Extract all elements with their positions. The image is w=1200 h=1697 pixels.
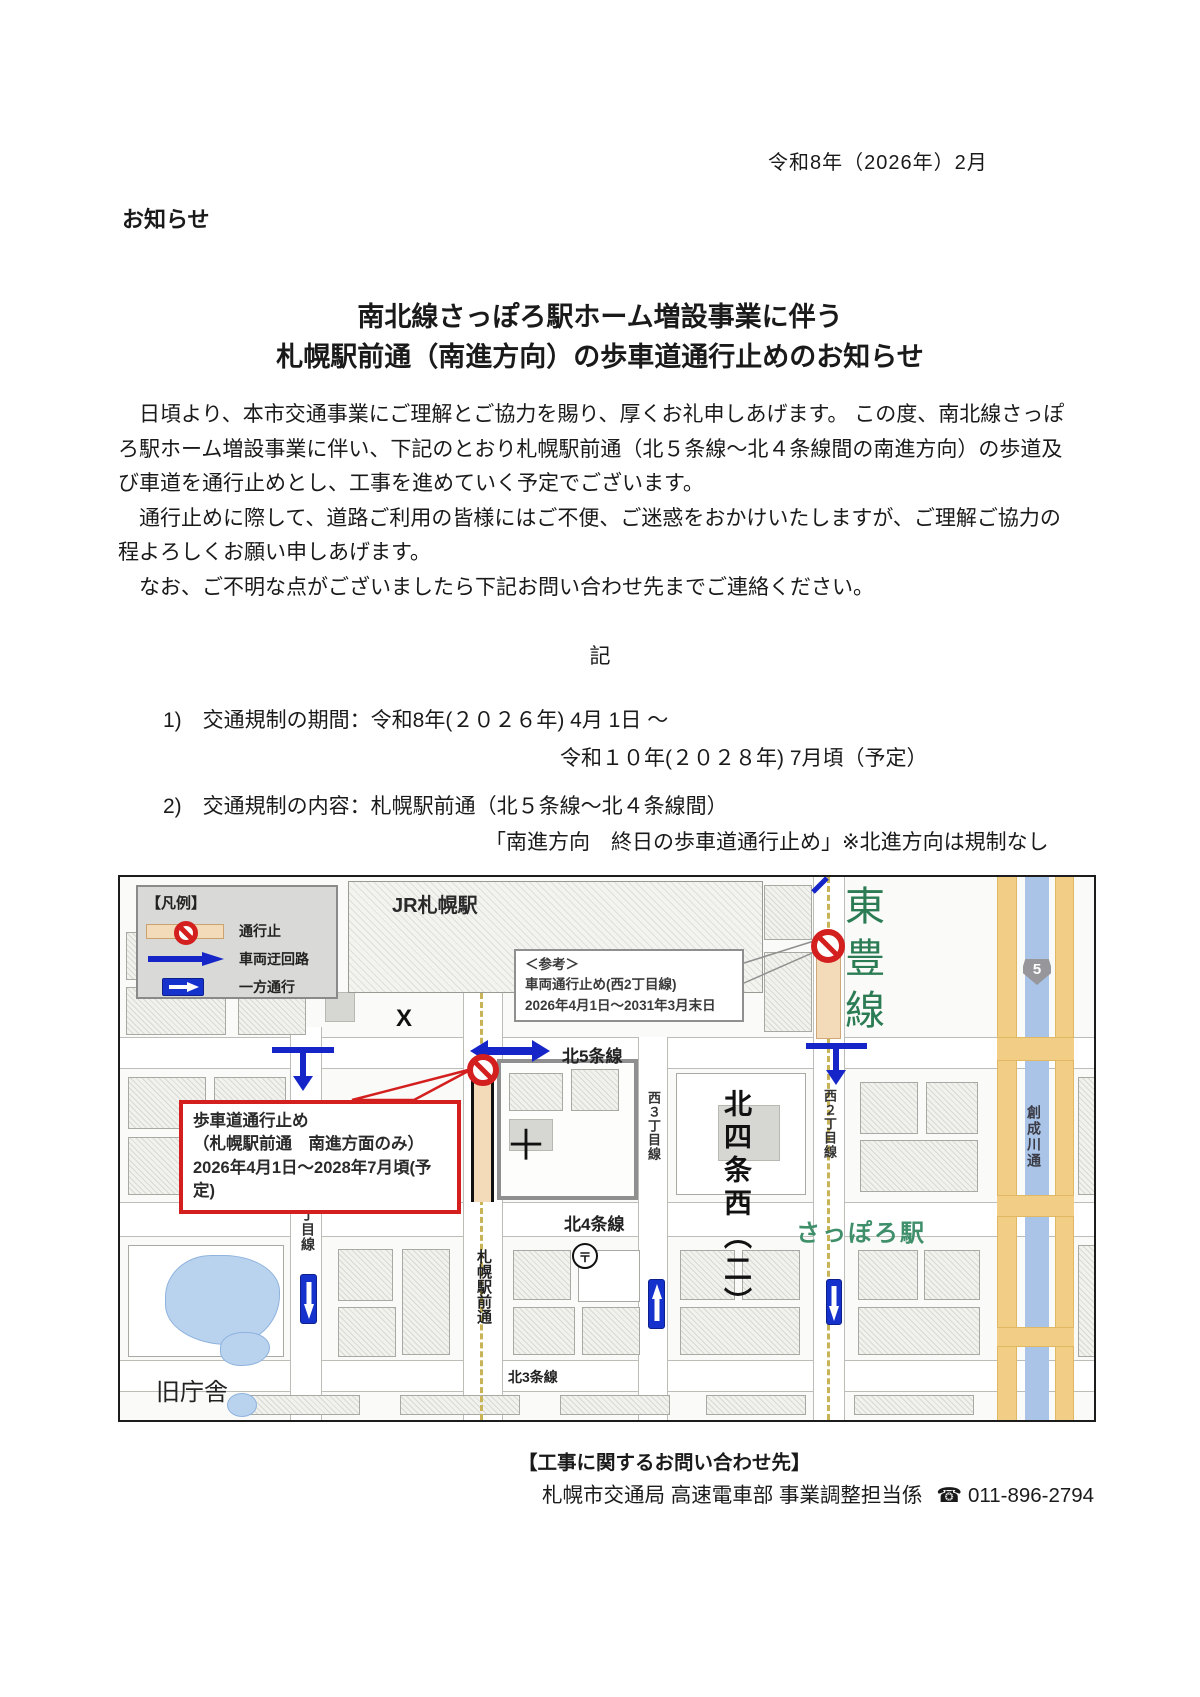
closure-line3: 2026年4月1日～2028年7月頃(予定) xyxy=(193,1157,447,1204)
down-arrow-icon xyxy=(829,1283,839,1321)
contact-phone: 011-896-2794 xyxy=(968,1484,1094,1507)
reference-line1: 車両通行止め(西2丁目線) xyxy=(525,975,733,995)
closure-line2: （札幌駅前通 南進方面のみ） xyxy=(193,1133,447,1156)
paragraph-1: 日頃より、本市交通事業にご理解とご協力を賜り、厚くお礼申しあげます。 この度、南… xyxy=(118,398,1080,502)
down-arrow-icon xyxy=(304,1279,314,1319)
map-block xyxy=(400,1395,520,1415)
kita4-nishi2-block-label: 北四条西（二） xyxy=(716,1089,756,1320)
map-block xyxy=(858,1250,918,1300)
legend-detour-label: 車両迂回路 xyxy=(239,949,309,969)
paragraph-2: 通行止めに際して、道路ご利用の皆様にはご不便、ご迷惑をおかけいたしますが、ご理解… xyxy=(118,502,1080,571)
map-block xyxy=(1078,1077,1096,1195)
regulation-period-line1: 1) 交通規制の期間：令和8年(２０２６年) 4月 1日 ～ xyxy=(163,706,928,736)
oneway-marker-nishi5 xyxy=(300,1274,317,1324)
police-box-x-mark: X xyxy=(396,1005,412,1033)
map-block xyxy=(764,952,812,1032)
label-kita4: 北4条線 xyxy=(564,1210,624,1235)
cross-mark: ＋ xyxy=(505,1125,547,1167)
map-block xyxy=(860,1140,978,1192)
paragraph-3: なお、ご不明な点がございましたら下記お問い合わせ先までご連絡ください。 xyxy=(118,571,1080,606)
oneway-marker-nishi3 xyxy=(648,1279,665,1329)
reference-title: ＜参考＞ xyxy=(525,955,733,975)
closure-callout: 歩車道通行止め （札幌駅前通 南進方面のみ） 2026年4月1日～2028年7月… xyxy=(179,1100,461,1214)
page-title: 南北線さっぽろ駅ホーム増設事業に伴う 札幌駅前通（南進方向）の歩車道通行止めのお… xyxy=(0,297,1200,377)
no-entry-icon-nishi2 xyxy=(811,929,845,963)
contact-heading: 【工事に関するお問い合わせ先】 xyxy=(518,1446,811,1475)
map-block xyxy=(509,1073,563,1111)
pond-small-2 xyxy=(227,1393,257,1417)
closure-map: JR札幌駅 xyxy=(118,875,1096,1422)
map-block xyxy=(338,1307,396,1357)
map-block xyxy=(1078,1245,1096,1357)
sapporo-subway-station-label: さっぽろ駅 xyxy=(796,1213,926,1248)
jr-station-label: JR札幌駅 xyxy=(392,889,478,918)
map-block xyxy=(513,1250,571,1300)
legend-closed-label: 通行止 xyxy=(239,921,281,941)
map-block xyxy=(513,1307,575,1355)
title-line-2: 札幌駅前通（南進方向）の歩車道通行止めのお知らせ xyxy=(0,337,1200,377)
label-kita5: 北5条線 xyxy=(562,1042,622,1067)
label-nishi2: 西２丁目線 xyxy=(820,1089,839,1159)
legend-oneway-label: 一方通行 xyxy=(239,977,295,997)
title-line-1: 南北線さっぽろ駅ホーム増設事業に伴う xyxy=(0,297,1200,337)
closed-road-icon xyxy=(146,924,230,939)
map-block xyxy=(764,885,812,940)
map-block xyxy=(706,1395,806,1415)
contact-org: 札幌市交通局 高速電車部 事業調整担当係 xyxy=(542,1484,922,1507)
oneway-icon xyxy=(146,978,230,996)
phone-icon: ☎ xyxy=(936,1484,962,1507)
map-block xyxy=(582,1307,640,1355)
map-block xyxy=(571,1069,619,1111)
map-block xyxy=(250,1395,360,1415)
old-hall-label: 旧庁舎 xyxy=(156,1372,228,1407)
up-arrow-icon xyxy=(652,1284,662,1324)
label-ekimae: 札幌駅前通 xyxy=(473,1249,494,1324)
legend-title: 【凡例】 xyxy=(146,892,328,913)
map-block xyxy=(858,1307,980,1355)
no-entry-icon-ekimae xyxy=(467,1054,499,1086)
regulation-period-line2: 令和１０年(２０２８年) 7月頃（予定） xyxy=(163,744,928,774)
contact-line: 札幌市交通局 高速電車部 事業調整担当係☎011-896-2794 xyxy=(542,1478,1094,1508)
ki-marker: 記 xyxy=(0,640,1200,670)
notice-label: お知らせ xyxy=(122,202,210,234)
notice-document: 令和8年（2026年）2月 お知らせ 南北線さっぽろ駅ホーム増設事業に伴う 札幌… xyxy=(0,0,1200,1697)
closed-section-ekimae xyxy=(471,1069,494,1202)
body-text: 日頃より、本市交通事業にご理解とご協力を賜り、厚くお礼申しあげます。 この度、南… xyxy=(118,398,1080,605)
regulation-content-item: 2) 交通規制の内容：札幌駅前通（北５条線～北４条線間） 「南進方向 終日の歩車… xyxy=(163,792,1049,858)
map-block xyxy=(338,1249,393,1301)
reference-callout: ＜参考＞ 車両通行止め(西2丁目線) 2026年4月1日～2031年3月末日 xyxy=(514,949,744,1022)
closure-line1: 歩車道通行止め xyxy=(193,1110,447,1133)
regulation-period-item: 1) 交通規制の期間：令和8年(２０２６年) 4月 1日 ～ 令和１０年(２０２… xyxy=(163,706,928,774)
regulation-content-line1: 2) 交通規制の内容：札幌駅前通（北５条線～北４条線間） xyxy=(163,792,1049,822)
map-legend: 【凡例】 通行止 車両迂回路 一方通行 xyxy=(136,885,338,999)
map-block xyxy=(854,1395,974,1415)
toho-line-label: 東豊線 xyxy=(832,885,890,1041)
legend-row-closed: 通行止 xyxy=(146,921,328,941)
label-nishi3: 西３丁目線 xyxy=(644,1091,663,1161)
reference-line2: 2026年4月1日～2031年3月末日 xyxy=(525,996,733,1016)
post-office-icon: 〒 xyxy=(572,1243,598,1269)
detour-arrow-icon xyxy=(146,951,230,967)
map-block xyxy=(926,1082,978,1134)
map-block xyxy=(402,1249,450,1355)
regulation-content-line2: 「南進方向 終日の歩車道通行止め」※北進方向は規制なし xyxy=(163,828,1049,858)
label-kita3: 北3条線 xyxy=(508,1367,558,1387)
document-date: 令和8年（2026年）2月 xyxy=(768,146,988,175)
map-block xyxy=(860,1082,918,1134)
map-block xyxy=(560,1395,670,1415)
map-block xyxy=(924,1250,980,1300)
pond xyxy=(165,1255,280,1345)
label-sosei: 創成川通 xyxy=(1024,1105,1044,1169)
legend-row-oneway: 一方通行 xyxy=(146,977,328,997)
oneway-marker-nishi2 xyxy=(826,1279,842,1325)
legend-row-detour: 車両迂回路 xyxy=(146,949,328,969)
